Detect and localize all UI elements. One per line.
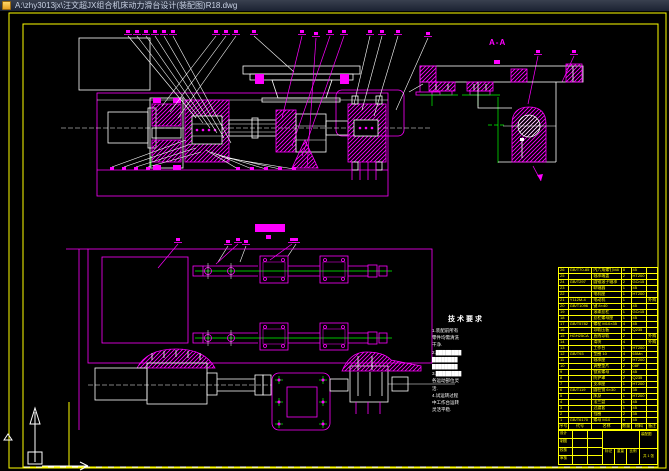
title-block-name-cell	[603, 431, 640, 449]
dwg-file-icon	[2, 1, 11, 10]
technical-requirement-line: 零件均需清洗	[432, 334, 524, 341]
technical-requirement-line: ████████	[432, 356, 524, 363]
title-block-signature-row: 校核	[559, 448, 602, 456]
bom-rows: 26GB/T70-85内六角螺钉M884525轴承端盖2HT20024GB/T2…	[559, 268, 657, 429]
technical-requirement-line: 中工作台运转	[432, 399, 524, 406]
technical-requirement-line: 1.装配前所有	[432, 327, 524, 334]
technical-requirement-line: ████████	[432, 363, 524, 370]
title-block-mid-cells: 标记重量比例	[603, 449, 640, 464]
technical-requirements: 技术要求 1.装配前所有零件均需清洗干净.2.█████████████████…	[432, 314, 524, 413]
window-title: A:\zhy3013jx\汪文超JX组合机床动力滑台设计(装配图)R18.dwg	[15, 1, 237, 10]
bom-header-row: 序号代号名称数量材料备注	[559, 424, 657, 429]
technical-requirement-line: 4.试运转过程	[432, 392, 524, 399]
cad-application-window: { "window": { "title": "A:\\zhy3013jx\\汪…	[0, 0, 669, 471]
title-block-signature-row: 审核	[559, 456, 602, 464]
title-block-drawing-name: 装配图	[640, 431, 657, 449]
technical-requirement-line: 灵活平稳.	[432, 406, 524, 413]
title-block-signature-row: 设计	[559, 431, 602, 439]
title-block: 设计制图校核审核 装配图 标记重量比例 共 1 张	[558, 430, 658, 465]
technical-requirement-line: 干净.	[432, 341, 524, 348]
title-block-signatures: 设计制图校核审核	[559, 431, 603, 464]
technical-requirement-line: 活.	[432, 385, 524, 392]
section-label-aa: A-A	[489, 38, 506, 47]
bom-table: 26GB/T70-85内六角螺钉M884525轴承端盖2HT20024GB/T2…	[558, 267, 658, 430]
technical-requirement-line: 3.████████	[432, 370, 524, 377]
technical-requirements-title: 技术要求	[448, 314, 524, 324]
technical-requirement-line: 各运动部位灵	[432, 377, 524, 384]
title-block-signature-row: 制图	[559, 439, 602, 447]
technical-requirement-line: 2.████████	[432, 349, 524, 356]
title-block-sheet-cell: 共 1 张	[640, 449, 657, 464]
technical-requirements-list: 1.装配前所有零件均需清洗干净.2.██████████████████████…	[432, 327, 524, 413]
